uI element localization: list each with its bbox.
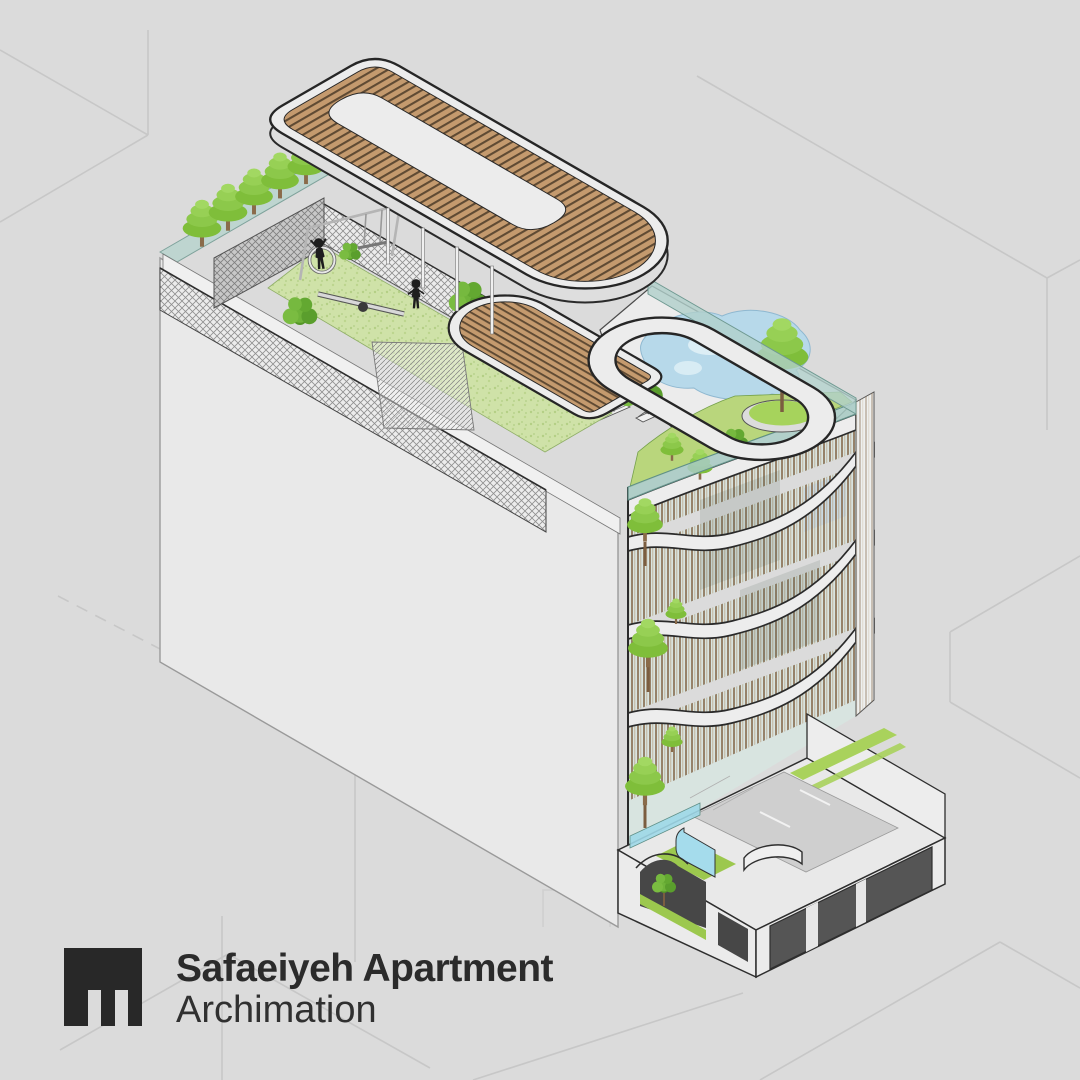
- project-title: Safaeiyeh Apartment: [176, 948, 553, 989]
- studio-name: Archimation: [176, 989, 553, 1032]
- axonometric-illustration: [0, 0, 1080, 1080]
- m-mark-logo: [64, 948, 142, 1026]
- brand-text: Safaeiyeh Apartment Archimation: [176, 948, 553, 1033]
- brand-footer: Safaeiyeh Apartment Archimation: [64, 948, 553, 1033]
- logo-slot: [115, 990, 128, 1026]
- garden-fence: [372, 342, 474, 430]
- logo-slot: [88, 990, 101, 1026]
